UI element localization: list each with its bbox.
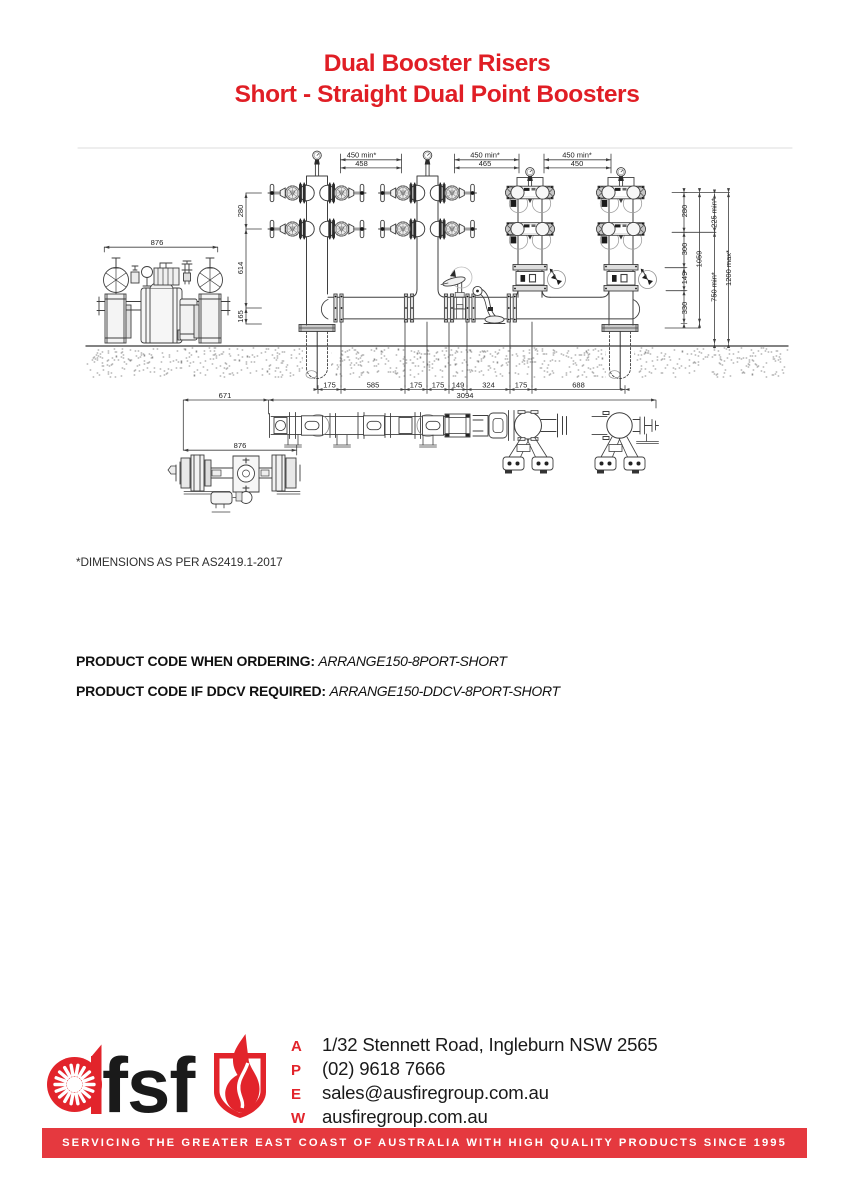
svg-text:225 min*: 225 min* xyxy=(710,198,719,228)
svg-text:585: 585 xyxy=(367,381,380,390)
svg-text:614: 614 xyxy=(236,262,245,275)
svg-text:149: 149 xyxy=(452,381,465,390)
svg-text:280: 280 xyxy=(236,205,245,218)
svg-text:1200 max*: 1200 max* xyxy=(724,250,733,286)
svg-text:330: 330 xyxy=(680,302,689,315)
svg-text:750 min*: 750 min* xyxy=(710,272,719,302)
svg-text:688: 688 xyxy=(572,381,585,390)
svg-text:280: 280 xyxy=(680,205,689,218)
svg-text:671: 671 xyxy=(219,391,232,400)
svg-text:175: 175 xyxy=(515,381,528,390)
svg-text:149: 149 xyxy=(680,272,689,285)
svg-text:300: 300 xyxy=(680,243,689,256)
svg-text:3094: 3094 xyxy=(457,391,474,400)
svg-text:876: 876 xyxy=(234,441,247,450)
svg-text:458: 458 xyxy=(355,159,368,168)
svg-text:324: 324 xyxy=(482,381,495,390)
svg-text:1059: 1059 xyxy=(695,251,704,268)
svg-text:175: 175 xyxy=(432,381,445,390)
svg-text:450: 450 xyxy=(571,159,584,168)
svg-text:165: 165 xyxy=(236,310,245,323)
svg-text:175: 175 xyxy=(323,381,336,390)
svg-text:fsf: fsf xyxy=(102,1041,196,1129)
svg-text:876: 876 xyxy=(151,238,164,247)
svg-text:175: 175 xyxy=(410,381,423,390)
svg-text:465: 465 xyxy=(479,159,492,168)
